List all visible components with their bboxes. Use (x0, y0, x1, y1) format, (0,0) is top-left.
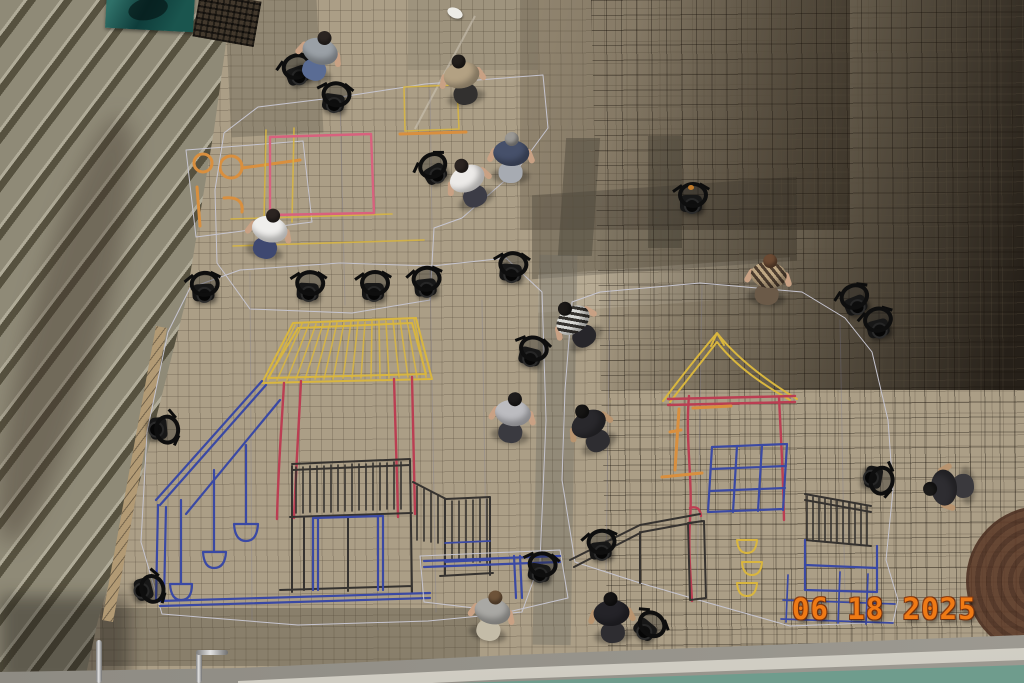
handrail-pipe-elbow (196, 650, 228, 655)
person-silver-top-black-cap (486, 389, 537, 451)
light-yoke-ring (295, 269, 326, 297)
stage-light (145, 412, 181, 445)
stage-light (358, 270, 388, 304)
handrail-pipe-2 (196, 652, 202, 683)
person-crouching-tan-top (436, 50, 491, 114)
light-yoke-ring (360, 270, 390, 296)
light-label-dot (688, 185, 694, 190)
stage-light (522, 549, 557, 588)
stage-light (187, 270, 219, 306)
person-standing-navy-top (488, 131, 534, 189)
person-walking-grey-shirt (464, 586, 519, 650)
stage-light (583, 528, 616, 565)
light-yoke-ring (189, 270, 221, 298)
stage-light (495, 250, 528, 286)
stage-light (676, 182, 706, 216)
stage-light (512, 332, 549, 372)
stage-light (858, 304, 895, 344)
handrail-pipe-1 (96, 640, 102, 683)
stage-light (859, 460, 898, 495)
actors-layer (0, 0, 1024, 683)
person-black-carrying-stand (588, 591, 636, 650)
person-checkered-shirt (543, 290, 611, 361)
stage-light (128, 569, 169, 607)
stage-light (292, 269, 324, 305)
date-stamp: 06 18 2025 (792, 592, 1012, 626)
stage-light (408, 265, 441, 302)
person-curly-hair-plaid-waist (743, 252, 793, 312)
person-black-outfit-bending (559, 395, 624, 465)
plaza-photo: 06 18 2025 (0, 0, 1024, 683)
person-kneeling-white-tee (240, 204, 296, 269)
person-walking-black-tee (921, 463, 981, 512)
